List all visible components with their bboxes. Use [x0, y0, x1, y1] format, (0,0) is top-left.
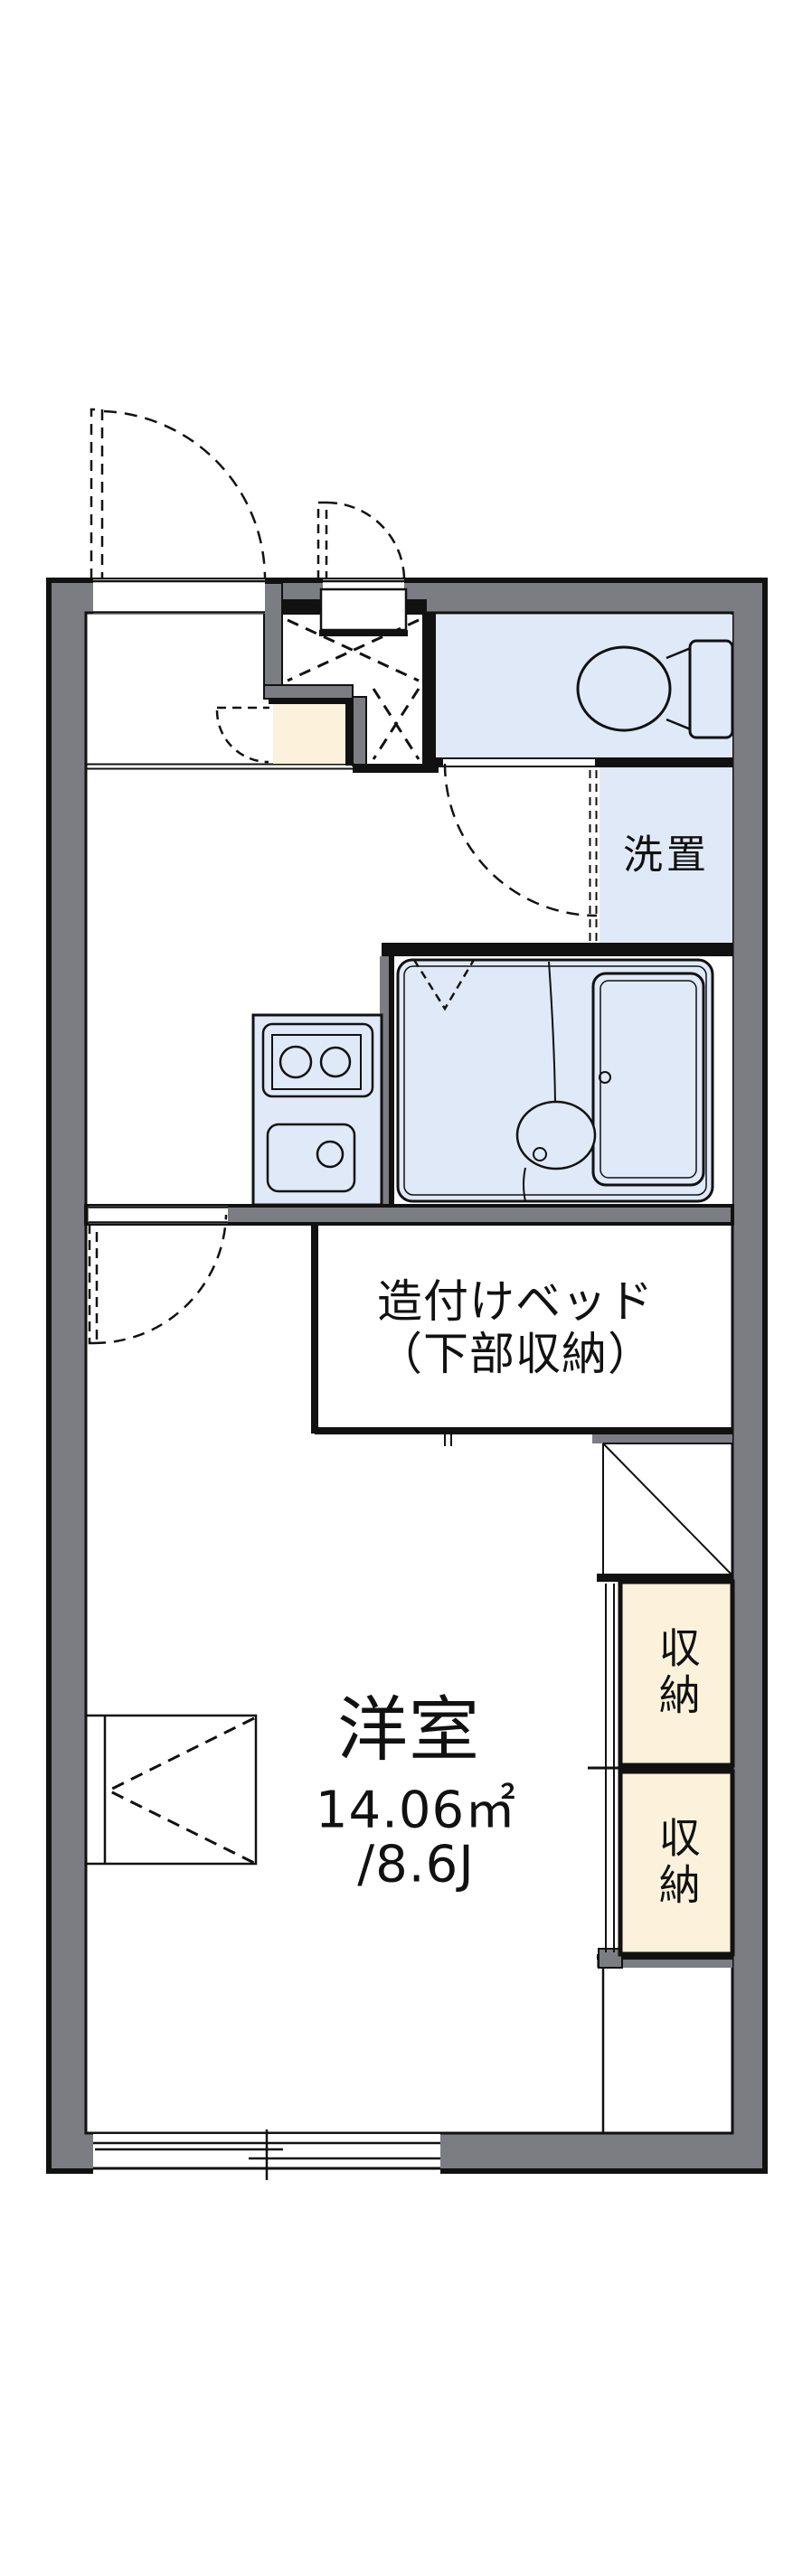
- toilet-tank-icon: [690, 641, 732, 738]
- entrance-door-arc: [104, 411, 265, 579]
- area-sqm-label: 14.06㎡: [316, 1783, 516, 1840]
- laundry-label: 洗置: [623, 832, 710, 877]
- storage-bottom-label: 収納: [653, 1816, 700, 1910]
- bed-wall-bottom: [315, 1427, 732, 1434]
- main-room-label: 洋室: [337, 1691, 480, 1770]
- toilet-door-opening: [443, 759, 595, 766]
- area-tatami-label: /8.6J: [357, 1838, 474, 1894]
- floor-plan-page: 洗置 造付けベッド （下部収納） 洋室 14.06㎡ /8.6J 収納 収納: [0, 0, 812, 2576]
- kitchen-unit: [253, 1015, 382, 1205]
- toilet-wall-left: [422, 612, 436, 767]
- service-door-leaf: [318, 503, 326, 579]
- genkan-wall-vertical: [353, 697, 366, 766]
- bath-wall-top: [382, 943, 732, 956]
- service-door-arc: [326, 503, 404, 579]
- toilet-bowl-icon: [578, 647, 670, 730]
- entry-step: [321, 589, 406, 630]
- bed-wall-bottom-gray: [592, 1434, 732, 1443]
- storage-top-label: 収納: [653, 1626, 700, 1720]
- bed-label-line2: （下部収納）: [377, 1329, 654, 1379]
- entrance-opening: [93, 579, 265, 614]
- bath-washbasin-icon: [517, 1102, 595, 1169]
- shoe-cabinet-top-edge: [269, 698, 353, 704]
- shoe-cabinet-right-edge: [345, 698, 353, 766]
- bed-label-line1: 造付けベッド: [377, 1276, 654, 1327]
- bath-wall-left-edge: [389, 956, 394, 1207]
- entrance-door-leaf: [91, 409, 102, 579]
- genkan-wall-left-column: [264, 583, 282, 689]
- genkan-wall-horizontal: [264, 685, 353, 699]
- bath-unit: [398, 960, 713, 1201]
- bed-wall-left: [311, 1224, 318, 1434]
- shoe-cabinet: [273, 702, 345, 764]
- room-door-opening: [89, 1206, 228, 1224]
